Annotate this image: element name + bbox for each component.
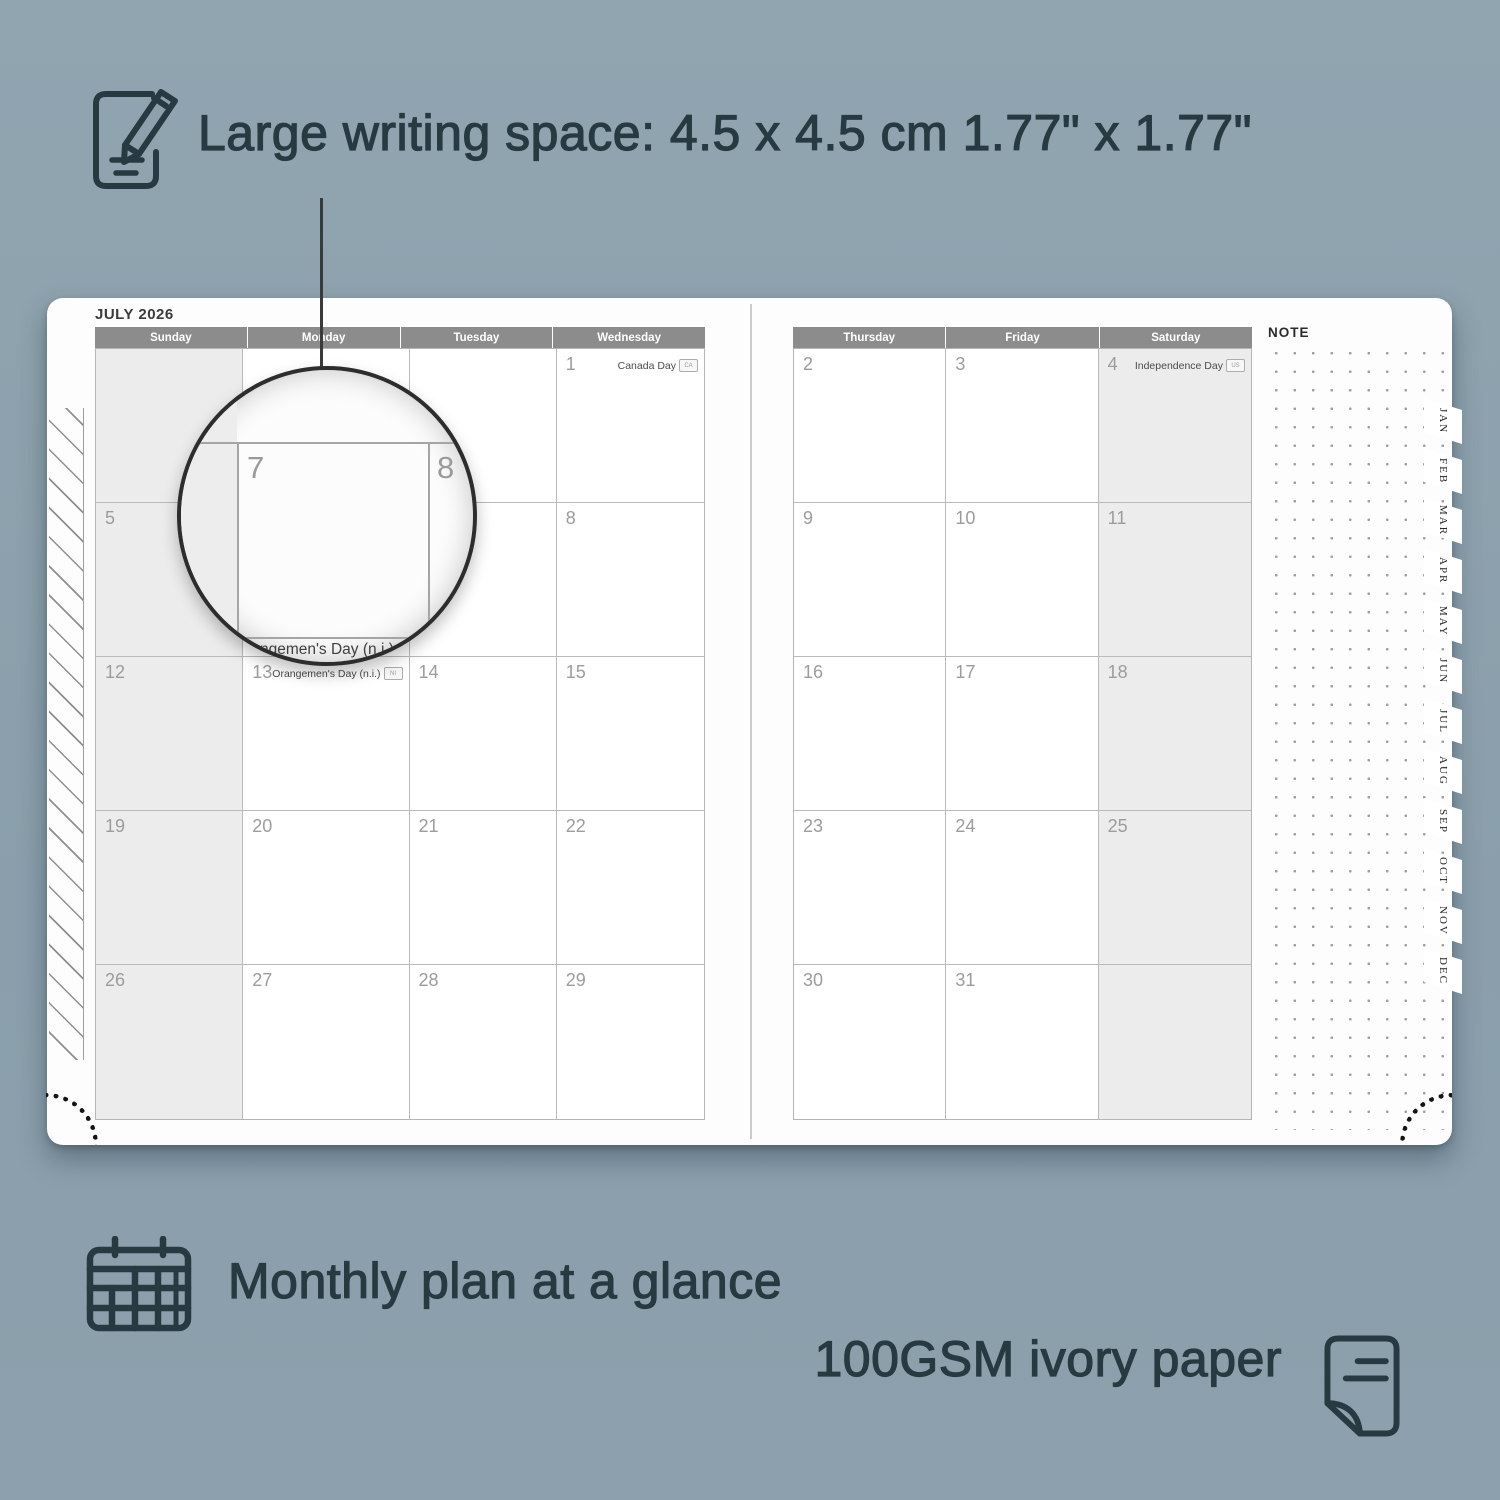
- calendar-cell: [1099, 965, 1251, 1119]
- calendar-cell: 11: [1099, 503, 1251, 657]
- date-number: 13: [252, 663, 272, 683]
- date-number: 12: [105, 663, 125, 683]
- weekday-header: Tuesday: [400, 327, 553, 348]
- calendar-cell: 8: [557, 503, 704, 657]
- page-spine: [750, 304, 752, 1139]
- magnified-date-7: 7: [247, 450, 264, 486]
- weekday-header-row-right: ThursdayFridaySaturday: [793, 327, 1252, 348]
- date-number: 31: [955, 971, 975, 991]
- date-number: 29: [566, 971, 586, 991]
- calendar-cell: 9: [794, 503, 946, 657]
- calendar-cell: 4Independence DayUS: [1099, 349, 1251, 503]
- date-number: 26: [105, 971, 125, 991]
- holiday-label: Canada DayCA: [618, 355, 698, 372]
- calendar-cell: 18: [1099, 657, 1251, 811]
- calendar-cell: 23: [794, 811, 946, 965]
- calendar-cell: 16: [794, 657, 946, 811]
- date-number: 30: [803, 971, 823, 991]
- date-number: 2: [803, 355, 813, 375]
- holiday-label: Independence DayUS: [1135, 355, 1245, 372]
- weekday-header: Sunday: [95, 327, 247, 348]
- calendar-cell: 15: [557, 657, 704, 811]
- note-label: NOTE: [1268, 325, 1310, 340]
- magnified-grid-line: [428, 442, 430, 662]
- calendar-cell: 1Canada DayCA: [557, 349, 704, 503]
- date-number: 5: [105, 509, 115, 529]
- planner-spread: JULY 2026 SundayMondayTuesdayWednesday T…: [47, 298, 1452, 1145]
- magnified-shaded-column: [181, 370, 237, 662]
- date-number: 22: [566, 817, 586, 837]
- date-number: 16: [803, 663, 823, 683]
- weekday-header-row-left: SundayMondayTuesdayWednesday: [95, 327, 705, 348]
- date-number: 15: [566, 663, 586, 683]
- note-dot-grid: [1261, 342, 1449, 1130]
- flag-badge: [398, 643, 420, 658]
- calendar-cell: 20: [243, 811, 409, 965]
- magnified-grid-line: [237, 637, 429, 639]
- date-number: 1: [566, 355, 576, 375]
- notepad-pencil-icon: [90, 80, 186, 192]
- magnified-holiday-label: Orangemen's Day (n.i.): [234, 641, 420, 659]
- bottom-right-annotation-label: 100GSM ivory paper: [814, 1330, 1282, 1388]
- top-annotation-label: Large writing space: 4.5 x 4.5 cm 1.77" …: [198, 104, 1252, 162]
- calendar-cell: 29: [557, 965, 704, 1119]
- calendar-cell: 22: [557, 811, 704, 965]
- date-number: 9: [803, 509, 813, 529]
- calendar-cell: 25: [1099, 811, 1251, 965]
- date-number: 18: [1108, 663, 1128, 683]
- date-number: 4: [1108, 355, 1118, 375]
- date-number: 10: [955, 509, 975, 529]
- date-number: 3: [955, 355, 965, 375]
- weekday-header: Saturday: [1099, 327, 1252, 348]
- date-number: 24: [955, 817, 975, 837]
- month-title: JULY 2026: [95, 306, 174, 323]
- flag-badge: NI: [384, 667, 403, 680]
- date-number: 17: [955, 663, 975, 683]
- paper-sheet-icon: [1318, 1332, 1406, 1440]
- date-number: 19: [105, 817, 125, 837]
- date-number: 20: [252, 817, 272, 837]
- date-number: 14: [419, 663, 439, 683]
- dotted-corner-arc-left: [0, 1093, 98, 1197]
- calendar-cell: 31: [946, 965, 1098, 1119]
- calendar-grid-icon: [84, 1236, 194, 1334]
- calendar-cell: 30: [794, 965, 946, 1119]
- calendar-grid-right: 234Independence DayUS9101116171823242530…: [793, 348, 1252, 1120]
- magnifier-circle: 7 8 Orangemen's Day (n.i.): [177, 366, 477, 666]
- date-number: 25: [1108, 817, 1128, 837]
- product-image-canvas: Large writing space: 4.5 x 4.5 cm 1.77" …: [0, 0, 1500, 1500]
- calendar-cell: 17: [946, 657, 1098, 811]
- calendar-cell: 14: [410, 657, 557, 811]
- calendar-cell: 27: [243, 965, 409, 1119]
- bottom-left-annotation-label: Monthly plan at a glance: [228, 1252, 782, 1310]
- calendar-cell: 28: [410, 965, 557, 1119]
- calendar-cell: 24: [946, 811, 1098, 965]
- date-number: 8: [566, 509, 576, 529]
- date-number: 11: [1108, 509, 1127, 529]
- dotted-corner-arc-right: [1400, 1093, 1500, 1197]
- calendar-cell: 12: [96, 657, 243, 811]
- weekday-header: Thursday: [793, 327, 945, 348]
- date-number: 23: [803, 817, 823, 837]
- weekday-header: Friday: [945, 327, 1098, 348]
- date-number: 21: [419, 817, 439, 837]
- weekday-header: Wednesday: [552, 327, 705, 348]
- flag-badge: US: [1226, 359, 1245, 372]
- flag-badge: CA: [679, 359, 698, 372]
- calendar-cell: 3: [946, 349, 1098, 503]
- calendar-cell: 26: [96, 965, 243, 1119]
- pointer-line: [320, 198, 323, 374]
- left-margin-hatch: [49, 408, 84, 1060]
- date-number: 28: [419, 971, 439, 991]
- calendar-cell: 13Orangemen's Day (n.i.)NI: [243, 657, 409, 811]
- weekday-header: Monday: [247, 327, 400, 348]
- date-number: 27: [252, 971, 272, 991]
- calendar-cell: 21: [410, 811, 557, 965]
- calendar-cell: 2: [794, 349, 946, 503]
- magnified-grid-line: [237, 442, 239, 638]
- calendar-cell: 19: [96, 811, 243, 965]
- calendar-cell: 10: [946, 503, 1098, 657]
- magnified-date-8: 8: [437, 450, 454, 486]
